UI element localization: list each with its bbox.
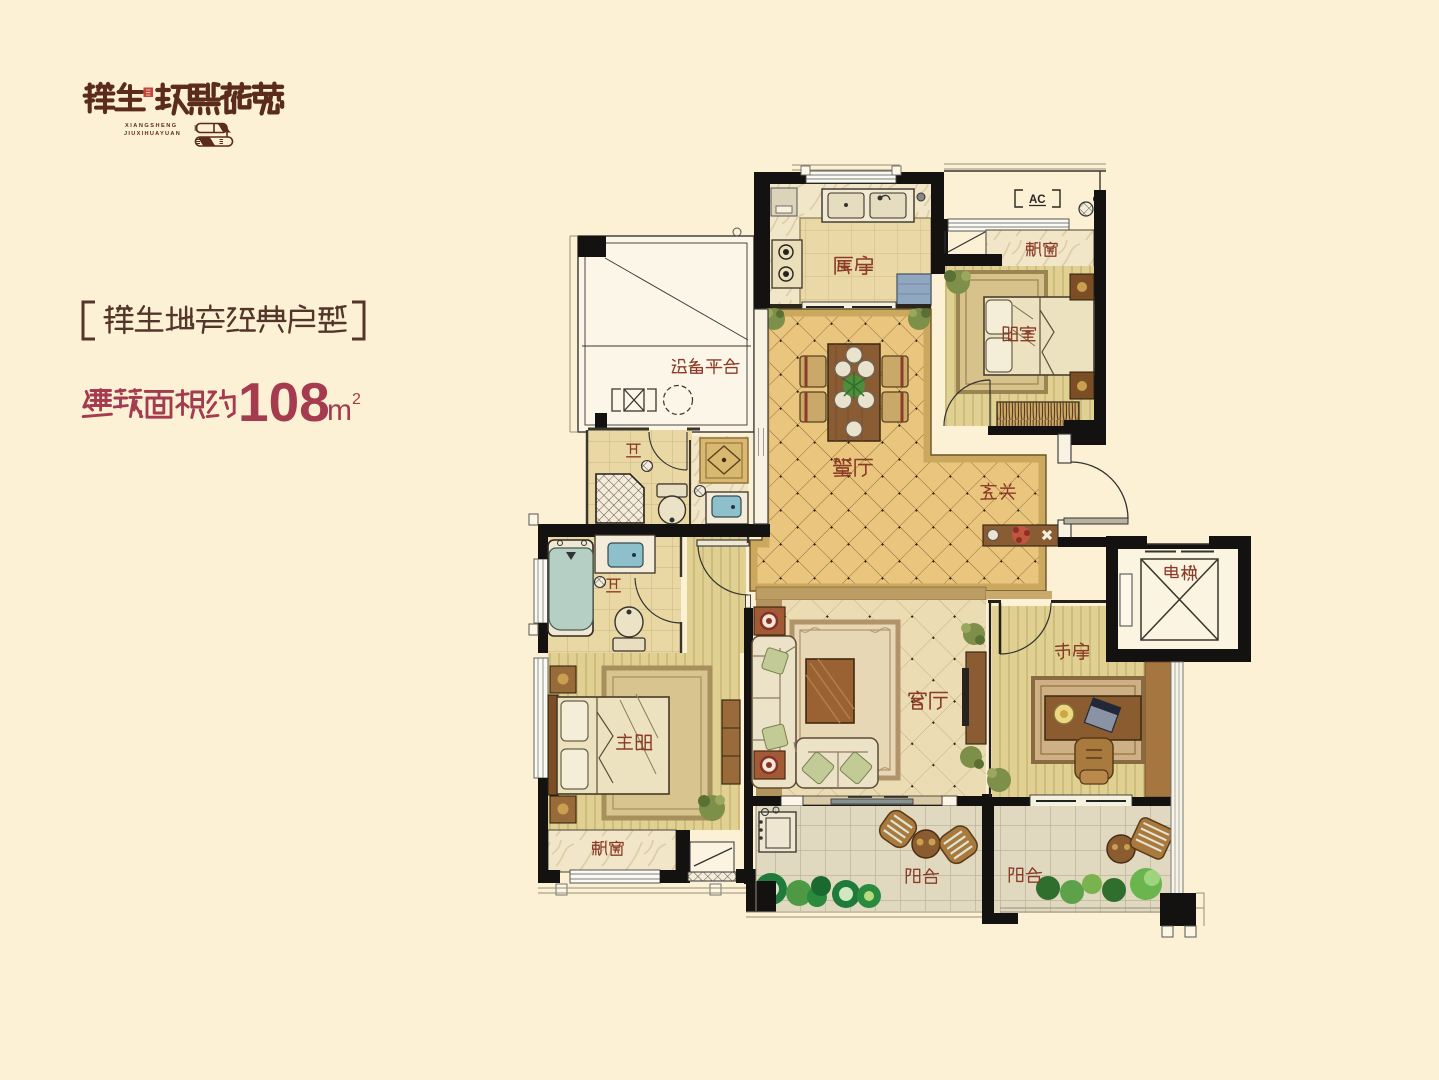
svg-text:AC: AC [1029, 194, 1046, 206]
svg-text:m: m [327, 394, 352, 427]
svg-text:JIUXIHUAYUAN: JIUXIHUAYUAN [124, 131, 181, 137]
svg-text:XIANGSHENG: XIANGSHENG [125, 123, 178, 129]
svg-text:108: 108 [238, 371, 330, 433]
svg-text:2: 2 [352, 391, 361, 408]
